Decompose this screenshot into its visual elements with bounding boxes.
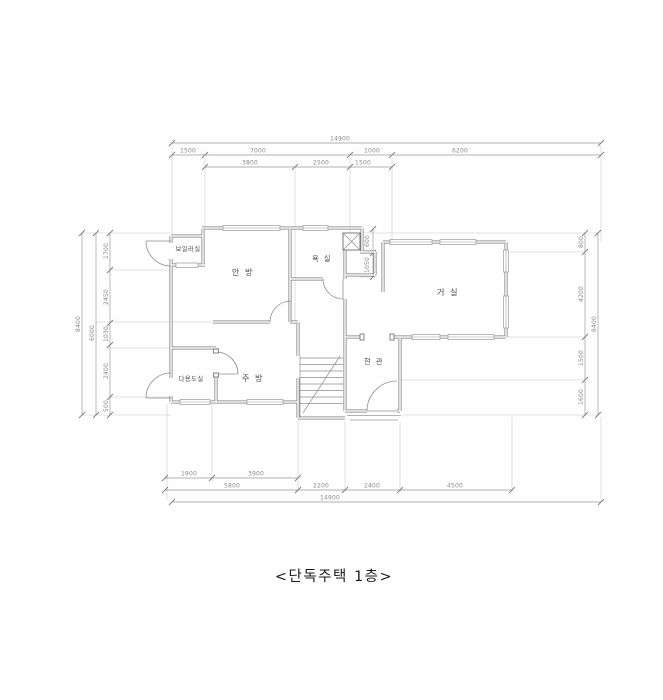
dim-left-2450: 2450 <box>103 289 110 305</box>
room-label-master-bedroom: 안 방 <box>232 267 254 277</box>
dim-right-800: 800 <box>578 236 585 248</box>
dim-shaft-600: 600 <box>364 235 371 247</box>
dim-top-1500: 1500 <box>180 148 196 155</box>
dimension-ticks <box>79 140 604 505</box>
dim-left-1030: 1030 <box>103 326 110 342</box>
room-label-entrance: 현 관 <box>364 357 384 366</box>
room-label-living-room: 거 실 <box>437 287 459 297</box>
dim-bottom-4500: 4500 <box>447 483 463 490</box>
dim-right-1500: 1500 <box>578 350 585 366</box>
dim-bottom-total: 14900 <box>320 495 340 502</box>
dim-top-7000: 7000 <box>250 148 266 155</box>
scanned-floorplan-page: 14900 1500 7000 1000 6200 3800 2500 1500… <box>0 0 663 700</box>
room-label-bathroom: 욕 실 <box>312 254 332 263</box>
dim-bottom-1900: 1900 <box>181 471 197 478</box>
dim-shaft-1050: 1050 <box>364 257 371 273</box>
drawing-caption: <단독주택 1층> <box>275 568 393 585</box>
dimension-labels: 14900 1500 7000 1000 6200 3800 2500 1500… <box>75 136 598 502</box>
entrance-steps <box>347 416 401 421</box>
room-label-kitchen: 주 방 <box>242 373 264 383</box>
dim-right-total: 8400 <box>591 316 598 332</box>
dim-right-1600: 1600 <box>578 389 585 405</box>
dim-bottom-2200: 2200 <box>313 483 329 490</box>
dim-top-2500: 2500 <box>313 160 329 167</box>
dim-top-6200: 6200 <box>452 148 468 155</box>
dim-bottom-3900: 3900 <box>248 471 264 478</box>
floor-plan-drawing: 14900 1500 7000 1000 6200 3800 2500 1500… <box>0 0 663 700</box>
dim-left-mid: 6000 <box>89 325 96 341</box>
walls <box>171 228 506 418</box>
dim-left-1700: 1700 <box>103 243 110 259</box>
dim-left-2400: 2400 <box>103 363 110 379</box>
dim-top-1000: 1000 <box>364 148 380 155</box>
dim-top-3800: 3800 <box>242 160 258 167</box>
room-label-boiler: 보일러실 <box>175 244 200 253</box>
stairs <box>300 356 343 418</box>
room-label-utility: 다용도실 <box>178 374 203 383</box>
dim-top-1500b: 1500 <box>355 160 371 167</box>
dim-bottom-5800: 5800 <box>224 483 240 490</box>
duct-shaft <box>343 233 360 250</box>
dim-bottom-2400: 2400 <box>364 483 380 490</box>
dimension-lines <box>82 143 601 502</box>
dim-left-500: 500 <box>103 400 110 412</box>
dim-left-total: 8400 <box>75 316 82 332</box>
dim-top-total: 14900 <box>330 136 350 143</box>
room-labels: 보일러실 안 방 욕 실 거 실 다용도실 주 방 현 관 <box>175 244 459 383</box>
extension-guides <box>82 146 601 502</box>
dim-right-4200: 4200 <box>578 286 585 302</box>
